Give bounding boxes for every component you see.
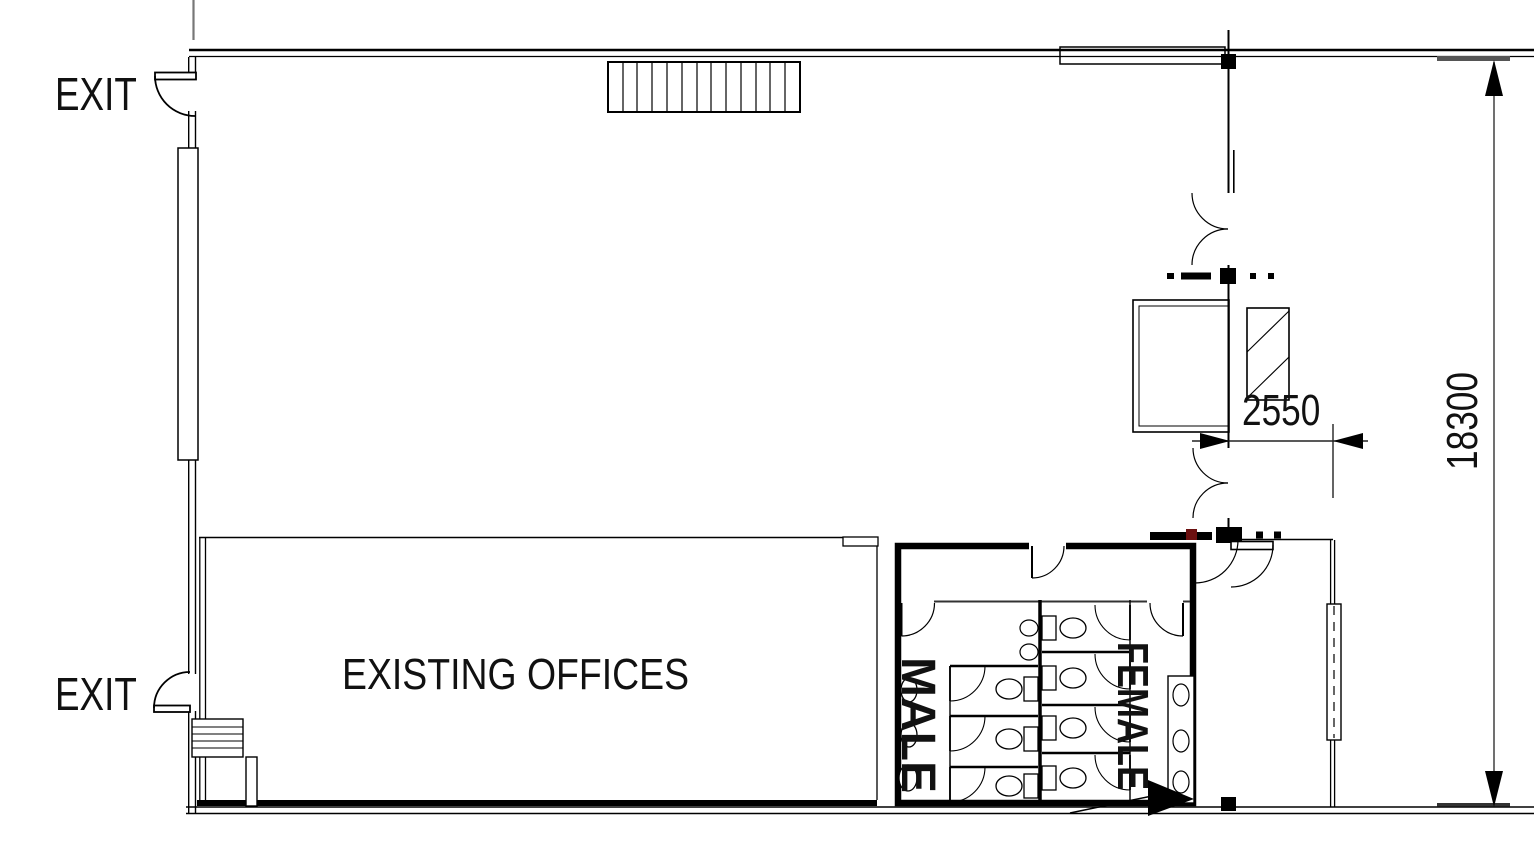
- ventilation-grille: [608, 62, 800, 112]
- dimension-18300-label: 18300: [1441, 365, 1485, 477]
- corner-node-accent: [1186, 529, 1197, 540]
- male-entry-door: [902, 603, 935, 636]
- dimension-line-2550: [1192, 424, 1368, 498]
- double-swing-door-lower: [1193, 448, 1228, 518]
- exit-door-bottom-icon: [154, 672, 190, 712]
- exit-label-top: EXIT: [55, 71, 137, 117]
- top-wall: [189, 50, 1534, 57]
- female-toilets: [1042, 616, 1086, 790]
- left-window: [178, 148, 198, 460]
- wall-node-bottom: [1221, 797, 1236, 811]
- right-window: [1327, 604, 1341, 740]
- dimension-2550-label: 2550: [1242, 389, 1320, 433]
- wall-node-top: [1221, 54, 1236, 69]
- existing-offices-label: EXISTING OFFICES: [342, 653, 689, 697]
- exit-door-top-icon: [155, 73, 196, 117]
- exit-label-bottom: EXIT: [55, 671, 137, 717]
- dimension-line-18300: [1485, 60, 1503, 807]
- male-toilets: [996, 677, 1038, 798]
- service-room: [1133, 300, 1229, 432]
- floor-plan-canvas: EXIT EXIT EXISTING OFFICES MALE FEMALE 2…: [0, 0, 1534, 864]
- female-room-label: FEMALE: [1110, 642, 1154, 790]
- washbasin-counter: [1168, 676, 1194, 803]
- centerline-upper: [1167, 268, 1274, 284]
- male-room-label: MALE: [893, 655, 941, 795]
- centerline-lower: [1150, 527, 1281, 543]
- female-entry-door: [1150, 603, 1183, 636]
- office-stairs: [192, 719, 257, 806]
- male-basins: [1020, 620, 1038, 660]
- lobby-swing-door: [1195, 540, 1273, 587]
